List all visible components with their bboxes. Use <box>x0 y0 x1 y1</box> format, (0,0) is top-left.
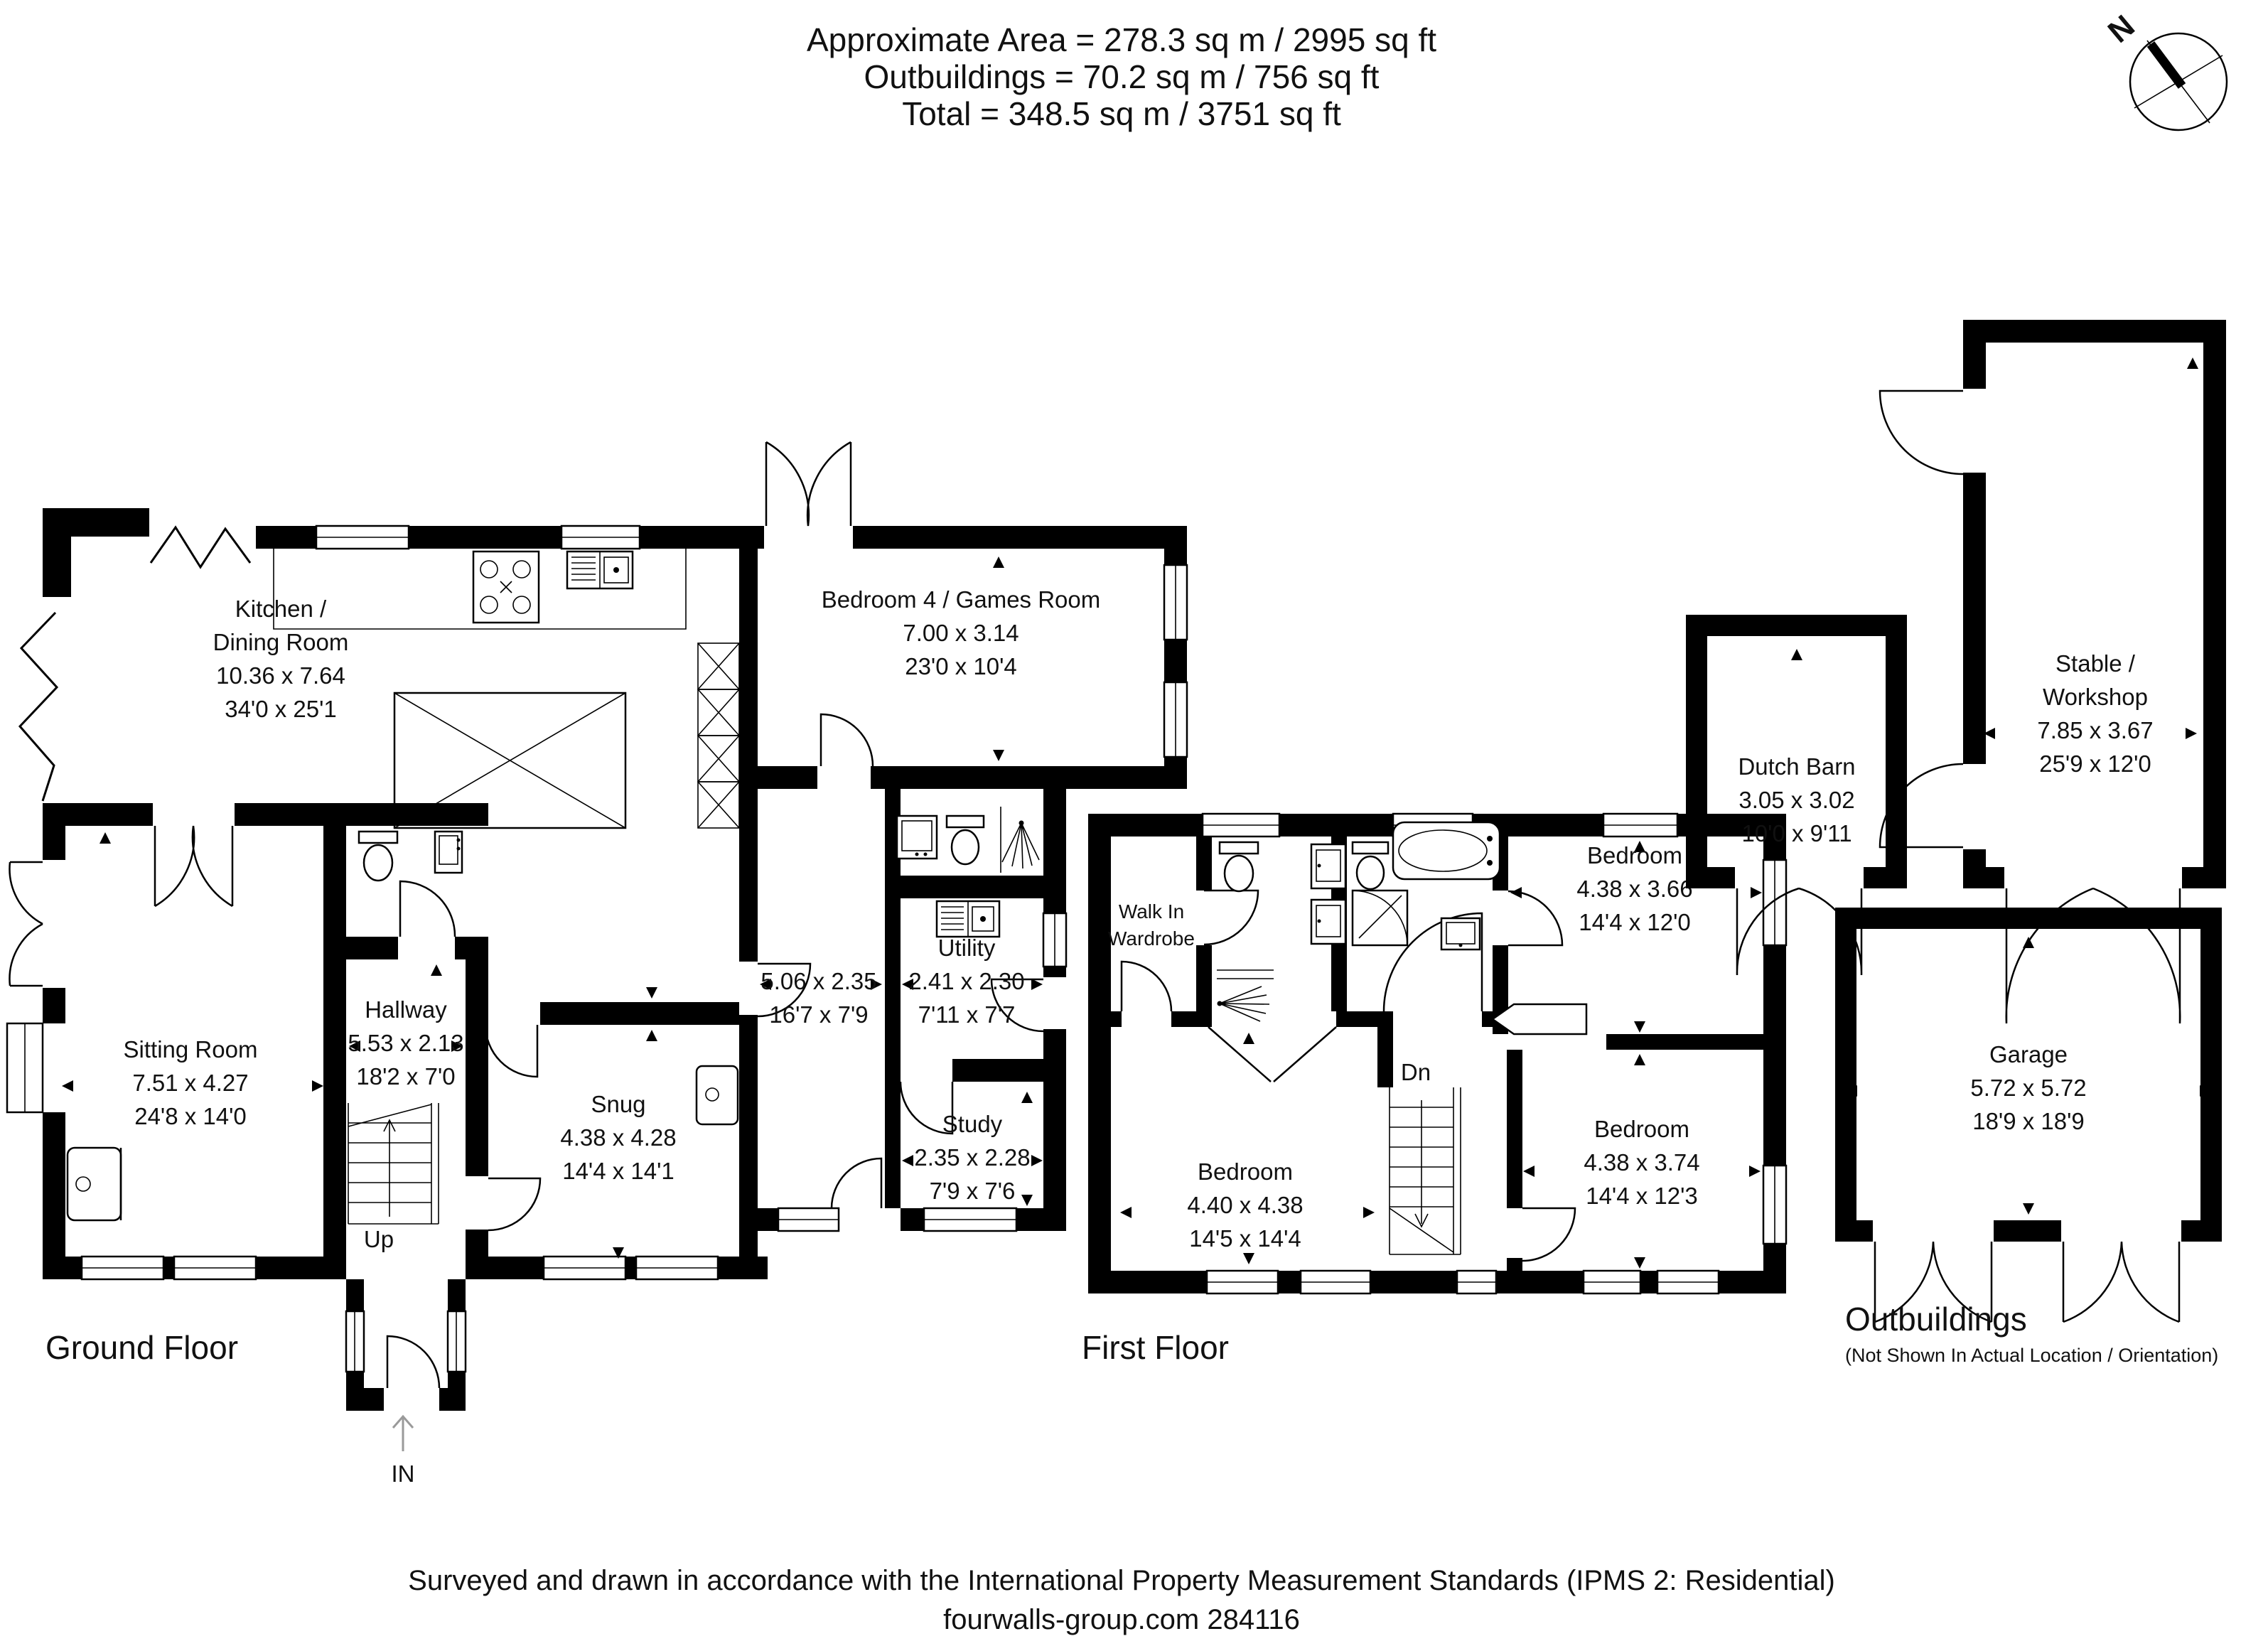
floorplan-page: Approximate Area = 278.3 sq m / 2995 sq … <box>0 0 2268 1646</box>
dutch-barn-dims-metric: 3.05 x 3.02 <box>1738 787 1854 813</box>
stable-dims-metric: 7.85 x 3.67 <box>2037 717 2153 743</box>
wall-break <box>151 527 250 567</box>
header-outbuildings-line: Outbuildings = 70.2 sq m / 756 sq ft <box>864 58 1380 95</box>
door <box>485 1025 537 1077</box>
sitting-room-dims-imperial: 24'8 x 14'0 <box>134 1103 247 1129</box>
header-area-line: Approximate Area = 278.3 sq m / 2995 sq … <box>807 21 1436 58</box>
basin-icon <box>1311 900 1345 944</box>
bedroom2-dims-metric: 4.38 x 3.66 <box>1576 876 1692 902</box>
window <box>316 526 409 549</box>
basin-icon <box>1441 918 1480 950</box>
shower-icon <box>1218 986 1270 1021</box>
larder-units <box>698 643 739 828</box>
footer: Surveyed and drawn in accordance with th… <box>408 1565 1835 1635</box>
door <box>488 1178 540 1230</box>
stove-icon <box>697 1066 738 1124</box>
window <box>544 1257 625 1279</box>
outbuildings-note: (Not Shown In Actual Location / Orientat… <box>1845 1345 2218 1366</box>
shower-cubicle-icon <box>1353 891 1407 945</box>
bedroom2-name: Bedroom <box>1587 842 1682 868</box>
toilet-icon <box>359 832 397 881</box>
hob-icon <box>473 552 539 623</box>
window <box>1584 1271 1640 1293</box>
header: Approximate Area = 278.3 sq m / 2995 sq … <box>807 21 1436 132</box>
window <box>82 1257 163 1279</box>
bedroom4-name: Bedroom 4 / Games Room <box>822 586 1101 613</box>
bedroom4-dims-metric: 7.00 x 3.14 <box>903 620 1019 646</box>
bay-window <box>7 1023 43 1112</box>
first-floor-fixtures <box>1217 822 1500 1254</box>
door <box>1880 391 1963 474</box>
snug-name: Snug <box>591 1091 645 1117</box>
door <box>1522 1208 1575 1261</box>
door <box>1508 891 1562 945</box>
inner-hall-dims-metric: 5.06 x 2.35 <box>761 968 876 994</box>
stairs-down <box>1390 1087 1461 1254</box>
walk-in-wardrobe-name-line2: Wardrobe <box>1108 927 1195 950</box>
window <box>1763 860 1786 945</box>
kitchen-dims-metric: 10.36 x 7.64 <box>216 662 345 689</box>
bedroom4-dims-imperial: 23'0 x 10'4 <box>905 653 1017 679</box>
first-floor-plan: Walk In Wardrobe Bedroom 4.40 x 4.38 14'… <box>1082 814 1786 1366</box>
study-dims-imperial: 7'9 x 7'6 <box>930 1178 1016 1204</box>
toilet-icon <box>1220 842 1258 891</box>
footer-standards-line: Surveyed and drawn in accordance with th… <box>408 1565 1835 1596</box>
garage-dims-metric: 5.72 x 5.72 <box>1970 1075 2086 1101</box>
window <box>1603 814 1677 837</box>
door <box>1204 891 1258 945</box>
garage-name: Garage <box>1989 1041 2068 1067</box>
entrance-door <box>387 1336 439 1388</box>
kitchen-name-line1: Kitchen / <box>235 596 327 622</box>
compass-needle <box>2151 44 2182 86</box>
window <box>636 1257 718 1279</box>
french-doors <box>9 862 43 986</box>
snug-dims-metric: 4.38 x 4.28 <box>560 1124 676 1151</box>
footer-company-line: fourwalls-group.com 284116 <box>943 1604 1300 1635</box>
first-floor-title: First Floor <box>1082 1329 1229 1366</box>
bath-icon <box>1393 822 1500 879</box>
bedroom1-name: Bedroom <box>1198 1158 1293 1185</box>
dutch-barn-name: Dutch Barn <box>1738 753 1855 780</box>
shelf-lines <box>1217 970 1274 979</box>
compass-north-label: N <box>2102 9 2141 50</box>
utility-dims-metric: 2.41 x 2.30 <box>908 968 1024 994</box>
utility-sink-icon <box>937 901 999 937</box>
shower-icon <box>1001 807 1039 873</box>
window <box>924 1208 1016 1231</box>
wall-break <box>20 613 57 801</box>
bedroom1-dims-metric: 4.40 x 4.38 <box>1187 1192 1303 1218</box>
kitchen-name-line2: Dining Room <box>213 629 349 655</box>
hallway-dims-imperial: 18'2 x 7'0 <box>356 1063 455 1090</box>
window <box>561 526 640 549</box>
entrance-arrow-icon <box>393 1416 413 1451</box>
study-name: Study <box>942 1111 1003 1137</box>
window <box>1657 1271 1719 1293</box>
study-dims-metric: 2.35 x 2.28 <box>914 1144 1030 1171</box>
door <box>400 881 455 937</box>
bedroom2-dims-imperial: 14'4 x 12'0 <box>1579 909 1691 935</box>
window <box>174 1257 256 1279</box>
floorplan-drawing: Approximate Area = 278.3 sq m / 2995 sq … <box>0 0 2268 1646</box>
window <box>448 1311 466 1372</box>
inner-hall-dims-imperial: 16'7 x 7'9 <box>769 1001 868 1028</box>
stairs-up-label: Up <box>364 1226 394 1252</box>
sitting-room-name: Sitting Room <box>124 1036 258 1063</box>
toilet-icon <box>947 816 984 864</box>
entrance-in-label: IN <box>392 1461 415 1487</box>
window <box>346 1311 364 1372</box>
kitchen-sink-icon <box>567 552 633 588</box>
window <box>1043 913 1066 967</box>
hallway-dims-metric: 5.53 x 2.13 <box>348 1030 463 1056</box>
fireplace-icon <box>68 1148 121 1220</box>
kitchen-dims-imperial: 34'0 x 25'1 <box>225 696 337 722</box>
window <box>1203 814 1279 837</box>
double-door <box>155 826 232 906</box>
window <box>1457 1271 1496 1293</box>
stairs-down-label: Dn <box>1401 1059 1431 1085</box>
garage: Garage 5.72 x 5.72 18'9 x 18'9 <box>1835 908 2222 1322</box>
door <box>821 714 873 766</box>
window <box>1763 1166 1786 1244</box>
bedroom1-dims-imperial: 14'5 x 14'4 <box>1189 1225 1301 1252</box>
door-leaf <box>1493 1004 1586 1034</box>
stable-dims-imperial: 25'9 x 12'0 <box>2039 751 2151 777</box>
snug-dims-imperial: 14'4 x 14'1 <box>562 1158 675 1184</box>
kitchen-island <box>394 693 625 828</box>
compass-icon: N <box>2102 9 2227 130</box>
window <box>778 1208 839 1231</box>
garage-dims-imperial: 18'9 x 18'9 <box>1972 1108 2085 1134</box>
ground-floor-labels: Kitchen / Dining Room 10.36 x 7.64 34'0 … <box>45 586 1100 1487</box>
ground-floor-plan: Kitchen / Dining Room 10.36 x 7.64 34'0 … <box>7 442 1187 1487</box>
hallway-name: Hallway <box>365 996 447 1023</box>
bedroom3-name: Bedroom <box>1594 1116 1689 1142</box>
double-leaf-opening <box>1208 1027 1336 1082</box>
dutch-barn-dims-imperial: 10'0 x 9'11 <box>1741 820 1852 846</box>
ground-floor-title: Ground Floor <box>45 1329 238 1366</box>
stable-name-line2: Workshop <box>2043 684 2148 710</box>
double-door <box>766 442 851 526</box>
utility-dims-imperial: 7'11 x 7'7 <box>918 1001 1016 1028</box>
bedroom3-dims-imperial: 14'4 x 12'3 <box>1586 1183 1698 1209</box>
window <box>1207 1271 1278 1293</box>
sitting-room-dims-metric: 7.51 x 4.27 <box>132 1070 248 1096</box>
walk-in-wardrobe-name-line1: Walk In <box>1119 900 1184 922</box>
basin-icon <box>1311 844 1345 888</box>
outbuildings-title: Outbuildings <box>1845 1301 2027 1338</box>
toilet-icon <box>1353 842 1388 889</box>
stable-name-line1: Stable / <box>2055 650 2136 677</box>
door <box>1122 962 1171 1011</box>
utility-name: Utility <box>938 935 996 961</box>
window <box>1164 682 1187 757</box>
header-total-line: Total = 348.5 sq m / 3751 sq ft <box>902 95 1341 132</box>
window <box>1164 565 1187 640</box>
bedroom3-dims-metric: 4.38 x 3.74 <box>1584 1149 1699 1176</box>
door <box>832 1158 881 1208</box>
stairs-up <box>348 1103 439 1224</box>
window <box>1301 1271 1370 1293</box>
basin-icon <box>897 816 937 859</box>
basin-icon <box>435 832 462 873</box>
